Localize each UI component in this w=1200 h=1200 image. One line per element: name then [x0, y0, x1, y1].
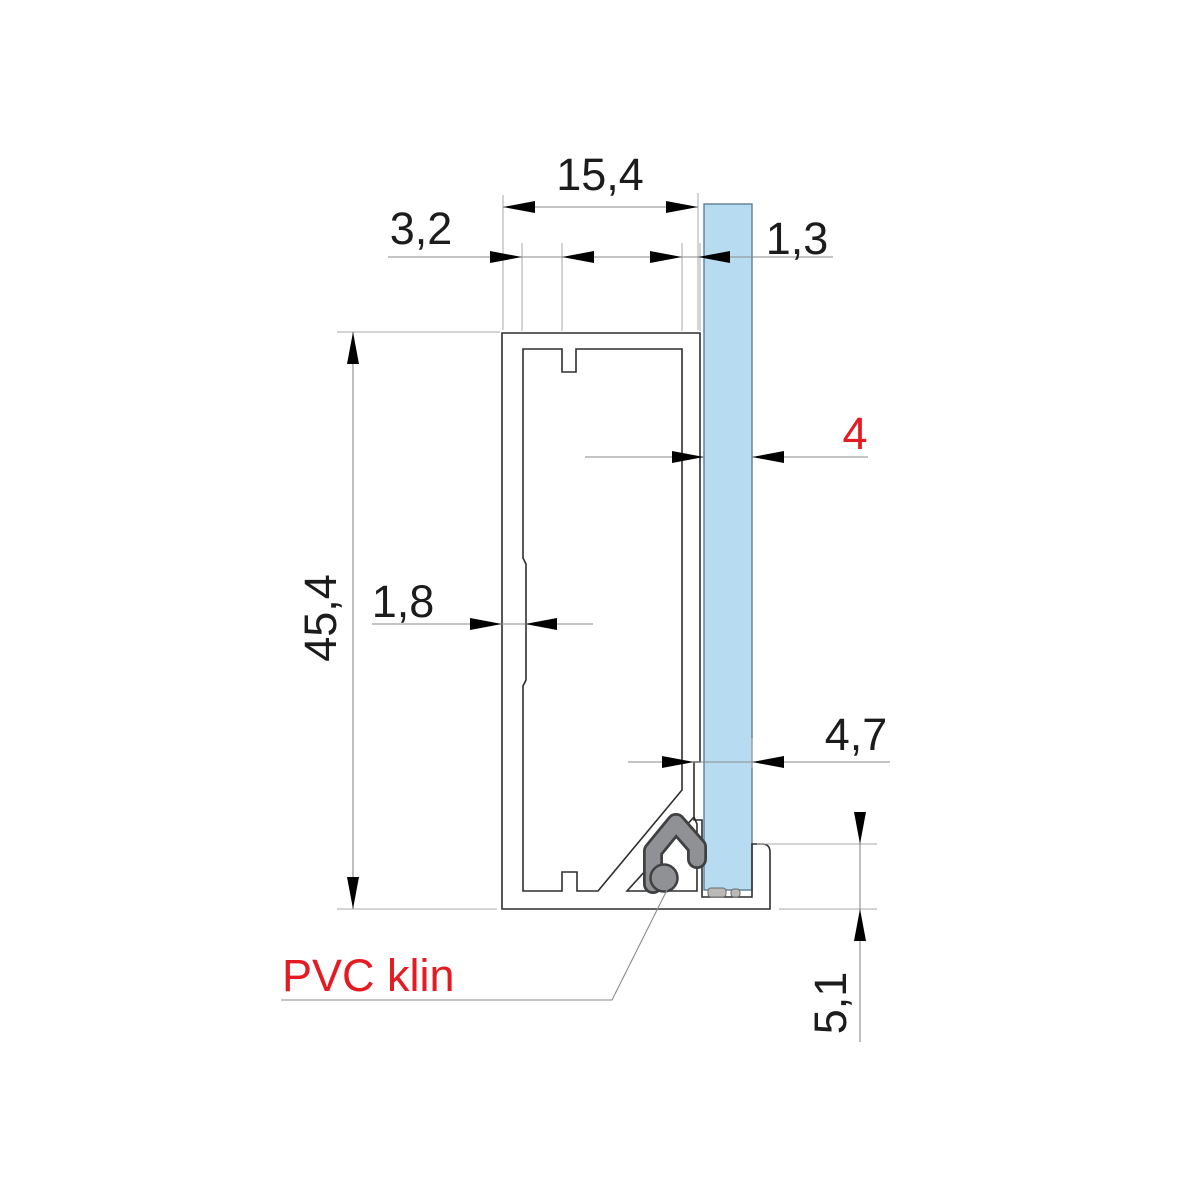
- dim-profile-width: [503, 193, 698, 330]
- setting-block-small: [731, 889, 740, 897]
- dim-label-profile-height: 45,4: [295, 574, 346, 662]
- dim-label-left-wall: 1,8: [372, 576, 435, 627]
- technical-drawing: 15,4 3,2 1,3 4 45,4 1,8 4,7 5,1 PVC klin: [0, 0, 1200, 1200]
- dim-label-glass-thickness: 4: [842, 408, 867, 459]
- glass-pane: [704, 204, 752, 890]
- pvc-wedge-label: PVC klin: [282, 950, 455, 1001]
- dim-label-profile-width: 15,4: [556, 149, 644, 200]
- setting-block: [708, 888, 726, 897]
- pvc-wedge-shape: [651, 823, 698, 892]
- dim-label-lip-offset: 3,2: [390, 203, 453, 254]
- dim-label-glazing-rebate: 4,7: [825, 709, 888, 760]
- dim-label-right-wall: 1,3: [766, 213, 829, 264]
- dim-label-foot-height: 5,1: [805, 972, 856, 1035]
- drawing-svg: 15,4 3,2 1,3 4 45,4 1,8 4,7 5,1 PVC klin: [0, 0, 1200, 1200]
